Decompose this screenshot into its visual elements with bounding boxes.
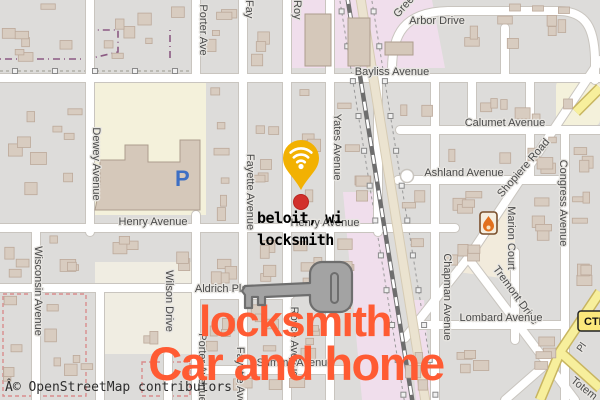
corridor-marker-square bbox=[13, 69, 18, 74]
corridor-marker-square bbox=[410, 253, 415, 258]
street-label-calumet-avenue: Calumet Avenue bbox=[465, 117, 546, 129]
street-label-wilson-drive: Wilson Drive bbox=[163, 270, 175, 332]
building bbox=[461, 364, 471, 373]
building bbox=[581, 265, 592, 275]
corridor-marker-square bbox=[373, 218, 378, 223]
corridor-marker-square bbox=[433, 392, 438, 397]
map-canvas[interactable]: Porter Ave Porter Avenue Dewey Avenue Wi… bbox=[0, 0, 600, 400]
building bbox=[124, 27, 135, 39]
building bbox=[468, 245, 480, 253]
building bbox=[558, 7, 569, 14]
building bbox=[68, 109, 82, 115]
building-b bbox=[348, 18, 370, 66]
building bbox=[535, 362, 548, 370]
building bbox=[65, 364, 78, 375]
building bbox=[269, 127, 279, 135]
building bbox=[67, 262, 76, 271]
building bbox=[112, 53, 123, 58]
building bbox=[458, 244, 468, 256]
building bbox=[4, 296, 17, 305]
building bbox=[16, 259, 29, 267]
building bbox=[177, 252, 189, 264]
building bbox=[4, 368, 14, 377]
building bbox=[2, 28, 15, 38]
building-a bbox=[305, 14, 331, 66]
street-label-yates-avenue: Yates Avenue bbox=[331, 114, 343, 181]
corridor-marker-square bbox=[362, 148, 367, 153]
building bbox=[422, 105, 433, 116]
building bbox=[217, 12, 232, 19]
building bbox=[73, 355, 80, 362]
building bbox=[64, 173, 73, 182]
corridor-marker-square bbox=[401, 392, 406, 397]
building bbox=[547, 15, 556, 26]
street-label-ashland-avenue: Ashland Avenue bbox=[424, 167, 503, 179]
corridor-marker-square bbox=[53, 69, 58, 74]
building bbox=[415, 191, 425, 202]
corridor-marker-square bbox=[133, 69, 138, 74]
corridor-marker-square bbox=[384, 288, 389, 293]
corridor-marker-square bbox=[356, 114, 361, 119]
building bbox=[146, 38, 152, 43]
corridor-marker-square bbox=[378, 253, 383, 258]
building bbox=[465, 350, 476, 358]
building bbox=[138, 13, 151, 25]
building bbox=[510, 4, 521, 11]
building bbox=[537, 158, 553, 170]
building bbox=[473, 361, 488, 371]
street-label-bayliss-avenue: Bayliss Avenue bbox=[355, 66, 429, 78]
building bbox=[549, 137, 557, 143]
building bbox=[449, 149, 455, 161]
building bbox=[60, 41, 72, 50]
building bbox=[498, 16, 513, 24]
corridor-marker-square bbox=[382, 79, 387, 84]
building bbox=[54, 358, 61, 366]
building bbox=[211, 88, 220, 95]
building bbox=[402, 203, 415, 208]
parking-icon: P bbox=[175, 166, 190, 191]
building bbox=[27, 112, 35, 122]
building bbox=[15, 49, 24, 55]
building bbox=[15, 31, 29, 39]
building bbox=[261, 160, 272, 170]
marker-label-line1: beloit, wi bbox=[257, 209, 343, 227]
building bbox=[119, 236, 129, 244]
building bbox=[500, 153, 511, 164]
corridor-marker-square bbox=[388, 114, 393, 119]
corridor-marker-square bbox=[399, 183, 404, 188]
building bbox=[357, 191, 368, 201]
red-dot-marker[interactable] bbox=[294, 195, 309, 210]
building bbox=[256, 42, 265, 52]
building bbox=[411, 239, 423, 247]
building bbox=[300, 90, 309, 96]
street-label-congress-avenue: Congress Avenue bbox=[557, 160, 569, 247]
building bbox=[47, 305, 58, 311]
building bbox=[537, 231, 549, 240]
roundabout-circle bbox=[401, 170, 414, 183]
building bbox=[81, 364, 93, 370]
building bbox=[536, 224, 552, 231]
street-label-wisconsin-avenue: Wisconsin Avenue bbox=[32, 246, 44, 336]
building bbox=[11, 345, 22, 352]
building bbox=[220, 195, 226, 206]
street-label-chapman-avenue: Chapman Avenue bbox=[441, 253, 453, 340]
building bbox=[17, 137, 30, 148]
building-c bbox=[385, 42, 413, 55]
building bbox=[50, 236, 58, 243]
building bbox=[507, 38, 518, 48]
corridor-marker-square bbox=[422, 323, 427, 328]
street-label-royce-fragment: Roy bbox=[291, 0, 303, 20]
street-label-fayette-avenue: Fayette Avenue bbox=[244, 154, 256, 230]
corridor-marker-square bbox=[339, 9, 344, 14]
map-viewport[interactable]: Porter Ave Porter Avenue Dewey Avenue Wi… bbox=[0, 0, 600, 400]
corridor-marker-square bbox=[377, 44, 382, 49]
building bbox=[501, 100, 508, 110]
building bbox=[577, 275, 592, 285]
cth-badge-text: CTH bbox=[584, 316, 600, 328]
marker-label-line2: locksmith bbox=[257, 231, 334, 249]
building bbox=[9, 269, 21, 277]
building bbox=[572, 218, 587, 223]
building bbox=[53, 126, 62, 132]
street-label-lombard-avenue: Lombard Avenue bbox=[460, 312, 543, 324]
corridor-marker-square bbox=[350, 79, 355, 84]
building bbox=[338, 103, 351, 108]
corridor-marker-square bbox=[416, 288, 421, 293]
building bbox=[252, 54, 263, 66]
building bbox=[338, 239, 352, 250]
building bbox=[211, 272, 221, 284]
building bbox=[345, 145, 359, 152]
building bbox=[31, 152, 47, 164]
building bbox=[574, 148, 587, 155]
corridor-marker-square bbox=[405, 218, 410, 223]
building bbox=[536, 352, 552, 359]
street-label-marion-court: Marion Court bbox=[505, 206, 517, 270]
street-label-arbor-drive: Arbor Drive bbox=[409, 15, 465, 27]
corridor-marker-square bbox=[367, 183, 372, 188]
building bbox=[539, 337, 555, 346]
wifi-dot bbox=[298, 164, 303, 169]
street-label-porter-ave-top: Porter Ave bbox=[197, 4, 209, 55]
street-label-dewey-avenue: Dewey Avenue bbox=[90, 127, 102, 200]
building bbox=[548, 27, 556, 36]
building bbox=[533, 6, 544, 11]
building bbox=[116, 19, 125, 29]
building bbox=[41, 4, 55, 9]
street-label-fayette-fragment: Fay bbox=[243, 0, 255, 19]
cth-route-badge: CTH bbox=[578, 311, 600, 331]
building bbox=[45, 329, 57, 342]
building bbox=[264, 265, 276, 276]
building bbox=[466, 192, 482, 198]
building bbox=[217, 123, 225, 129]
corridor-marker-square bbox=[371, 9, 376, 14]
building bbox=[214, 148, 229, 155]
building bbox=[64, 133, 74, 139]
building bbox=[583, 192, 590, 203]
building bbox=[470, 26, 477, 39]
building bbox=[491, 99, 498, 109]
building bbox=[5, 247, 14, 259]
building bbox=[221, 178, 229, 183]
osm-attribution-link[interactable]: Â© OpenStreetMap contributors bbox=[5, 379, 232, 395]
building bbox=[558, 20, 566, 33]
building bbox=[481, 103, 492, 112]
building bbox=[580, 160, 589, 172]
corridor-marker-square bbox=[394, 148, 399, 153]
building bbox=[535, 198, 549, 206]
corridor-marker-square bbox=[173, 69, 178, 74]
building bbox=[217, 208, 225, 221]
fire-station-icon bbox=[480, 212, 497, 234]
street-label-henry-avenue: Henry Avenue bbox=[119, 216, 188, 228]
building bbox=[256, 126, 264, 134]
building bbox=[462, 200, 474, 208]
building bbox=[212, 30, 219, 35]
building bbox=[564, 99, 573, 109]
building bbox=[401, 105, 407, 116]
building bbox=[25, 183, 37, 195]
building bbox=[104, 41, 113, 48]
building bbox=[172, 7, 185, 18]
corridor-marker-square bbox=[93, 69, 98, 74]
